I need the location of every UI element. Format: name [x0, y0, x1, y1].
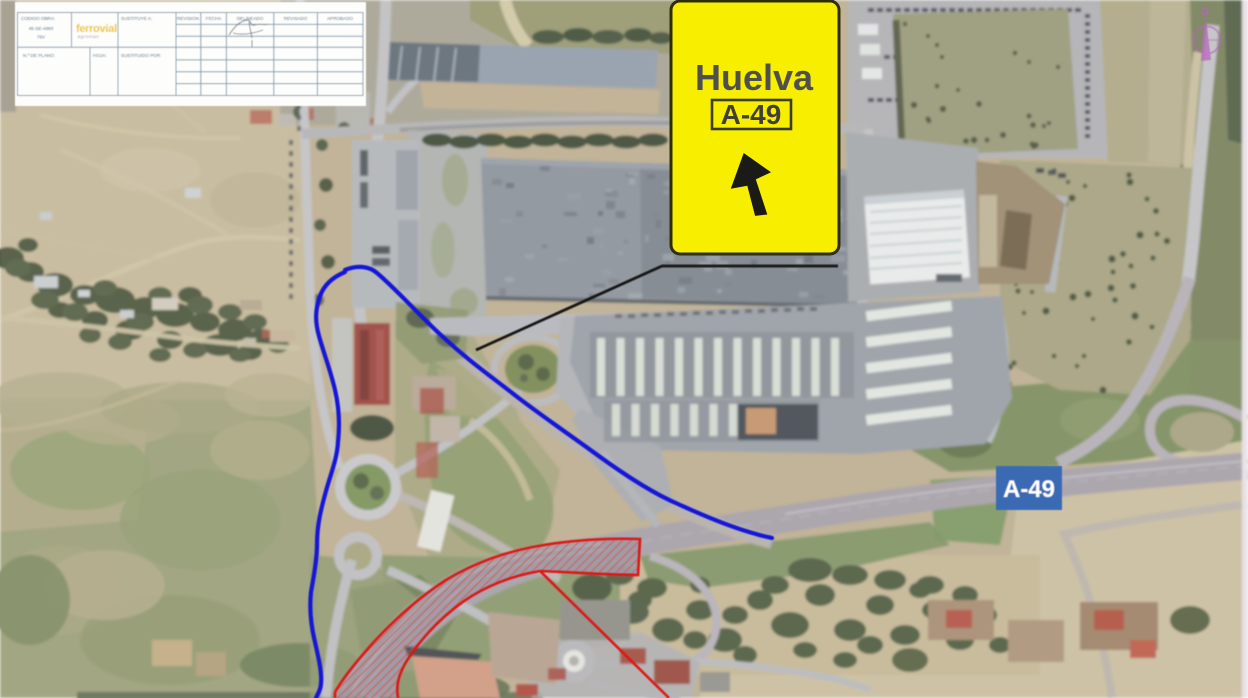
svg-text:FECHA: FECHA [206, 16, 223, 21]
svg-text:Huelva: Huelva [695, 57, 814, 98]
svg-text:APROBADO: APROBADO [327, 16, 353, 21]
svg-text:agroman: agroman [78, 34, 100, 40]
svg-text:SUSTITUIDO POR:: SUSTITUIDO POR: [121, 53, 161, 58]
svg-text:A-49: A-49 [1003, 476, 1055, 503]
svg-text:HOJA:: HOJA: [93, 53, 107, 58]
svg-text:REVISION: REVISION [177, 16, 199, 21]
svg-text:N.º DE PLANO:: N.º DE PLANO: [23, 53, 55, 58]
svg-text:CODIGO OBRA:: CODIGO OBRA: [21, 16, 55, 21]
svg-text:45-SE-4960: 45-SE-4960 [29, 26, 54, 31]
svg-text:DELINEADO: DELINEADO [237, 16, 264, 21]
svg-text:A-49: A-49 [721, 99, 782, 130]
svg-text:75V: 75V [37, 35, 46, 40]
svg-text:ferrovial: ferrovial [76, 23, 117, 35]
svg-text:SUSTITUYE A:: SUSTITUYE A: [121, 16, 152, 21]
svg-text:REVISADO: REVISADO [284, 16, 308, 21]
